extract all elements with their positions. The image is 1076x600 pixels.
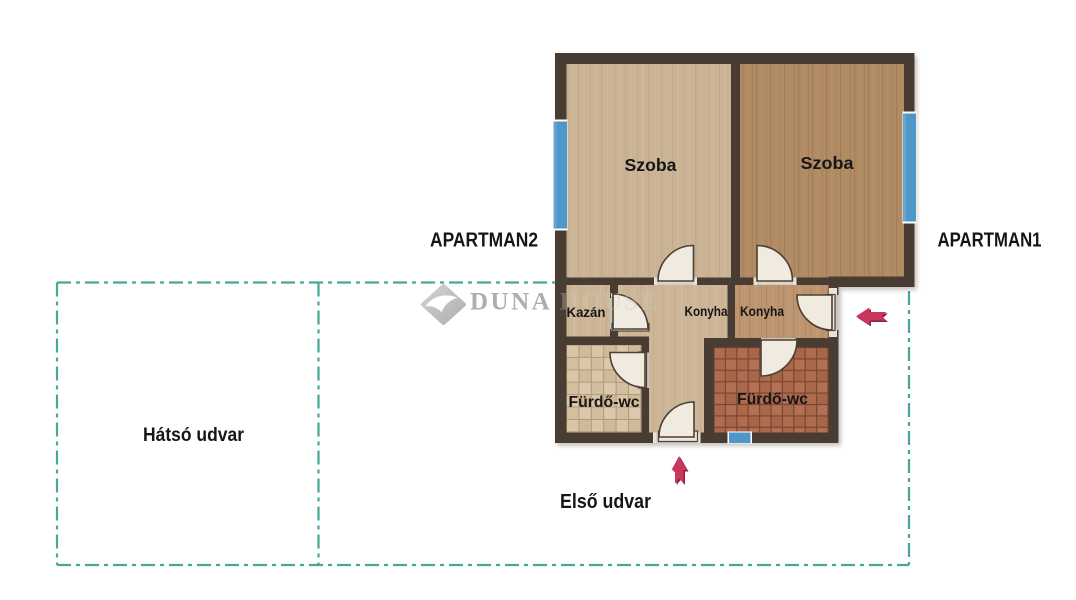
svg-text:APARTMAN2: APARTMAN2 xyxy=(430,230,538,252)
svg-text:Első udvar: Első udvar xyxy=(560,491,651,513)
svg-text:Hátsó udvar: Hátsó udvar xyxy=(143,425,245,446)
svg-text:Konyha: Konyha xyxy=(740,303,784,319)
svg-text:Szoba: Szoba xyxy=(625,155,677,175)
svg-text:Szoba: Szoba xyxy=(801,153,854,173)
svg-text:Konyha: Konyha xyxy=(685,303,728,319)
svg-text:Kazán: Kazán xyxy=(567,304,606,320)
svg-text:Fürdő-wc: Fürdő-wc xyxy=(737,391,808,408)
svg-text:APARTMAN1: APARTMAN1 xyxy=(938,230,1042,252)
svg-text:Fürdő-wc: Fürdő-wc xyxy=(569,394,640,411)
svg-text:DUNA HOUSE: DUNA HOUSE xyxy=(470,289,660,316)
